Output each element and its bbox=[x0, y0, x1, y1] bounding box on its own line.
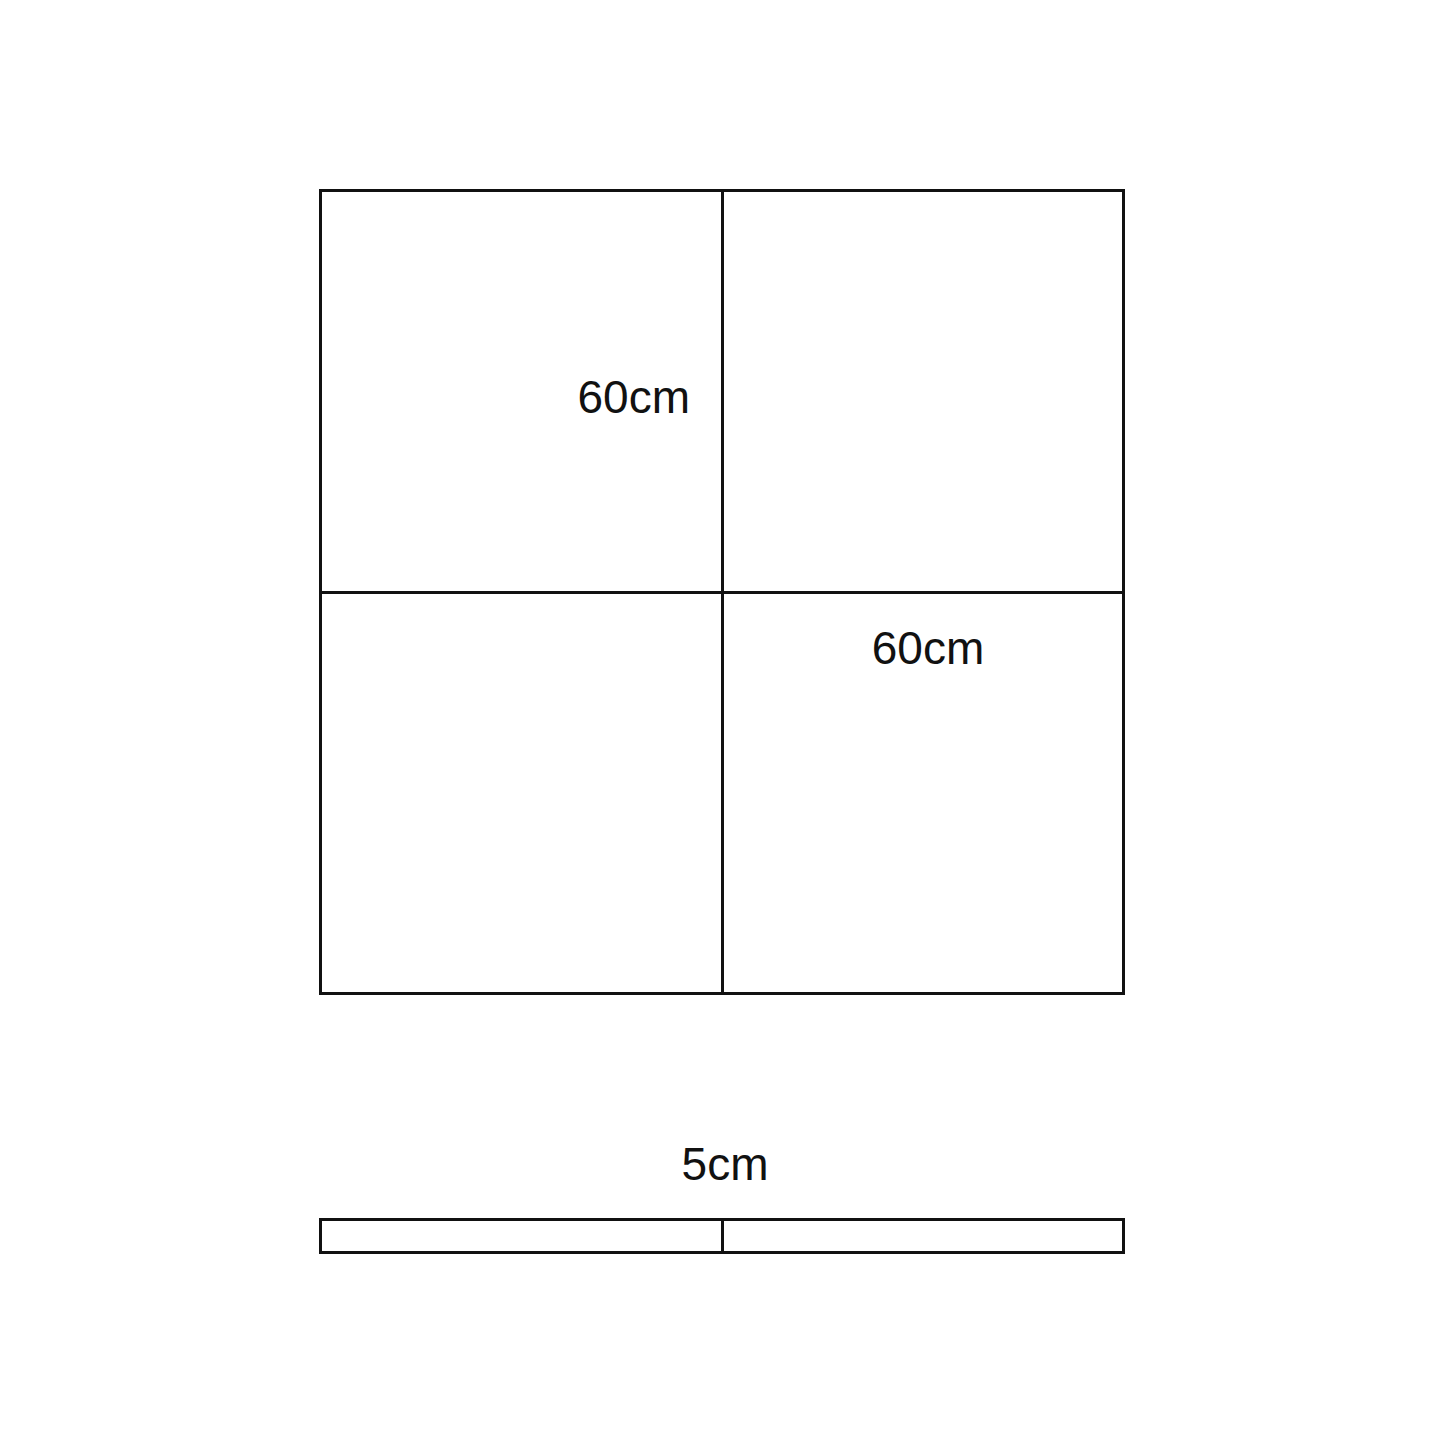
tile-width-label: 60cm bbox=[872, 625, 984, 671]
grid-horizontal-divider bbox=[322, 591, 1122, 594]
side-view-divider bbox=[721, 1221, 724, 1251]
tile-thickness-label: 5cm bbox=[682, 1141, 769, 1187]
tile-front-view-grid: 60cm 60cm bbox=[319, 189, 1125, 995]
tile-height-label: 60cm bbox=[578, 374, 690, 420]
tile-side-view bbox=[319, 1218, 1125, 1254]
tile-dimension-diagram: 60cm 60cm 5cm bbox=[0, 0, 1445, 1445]
